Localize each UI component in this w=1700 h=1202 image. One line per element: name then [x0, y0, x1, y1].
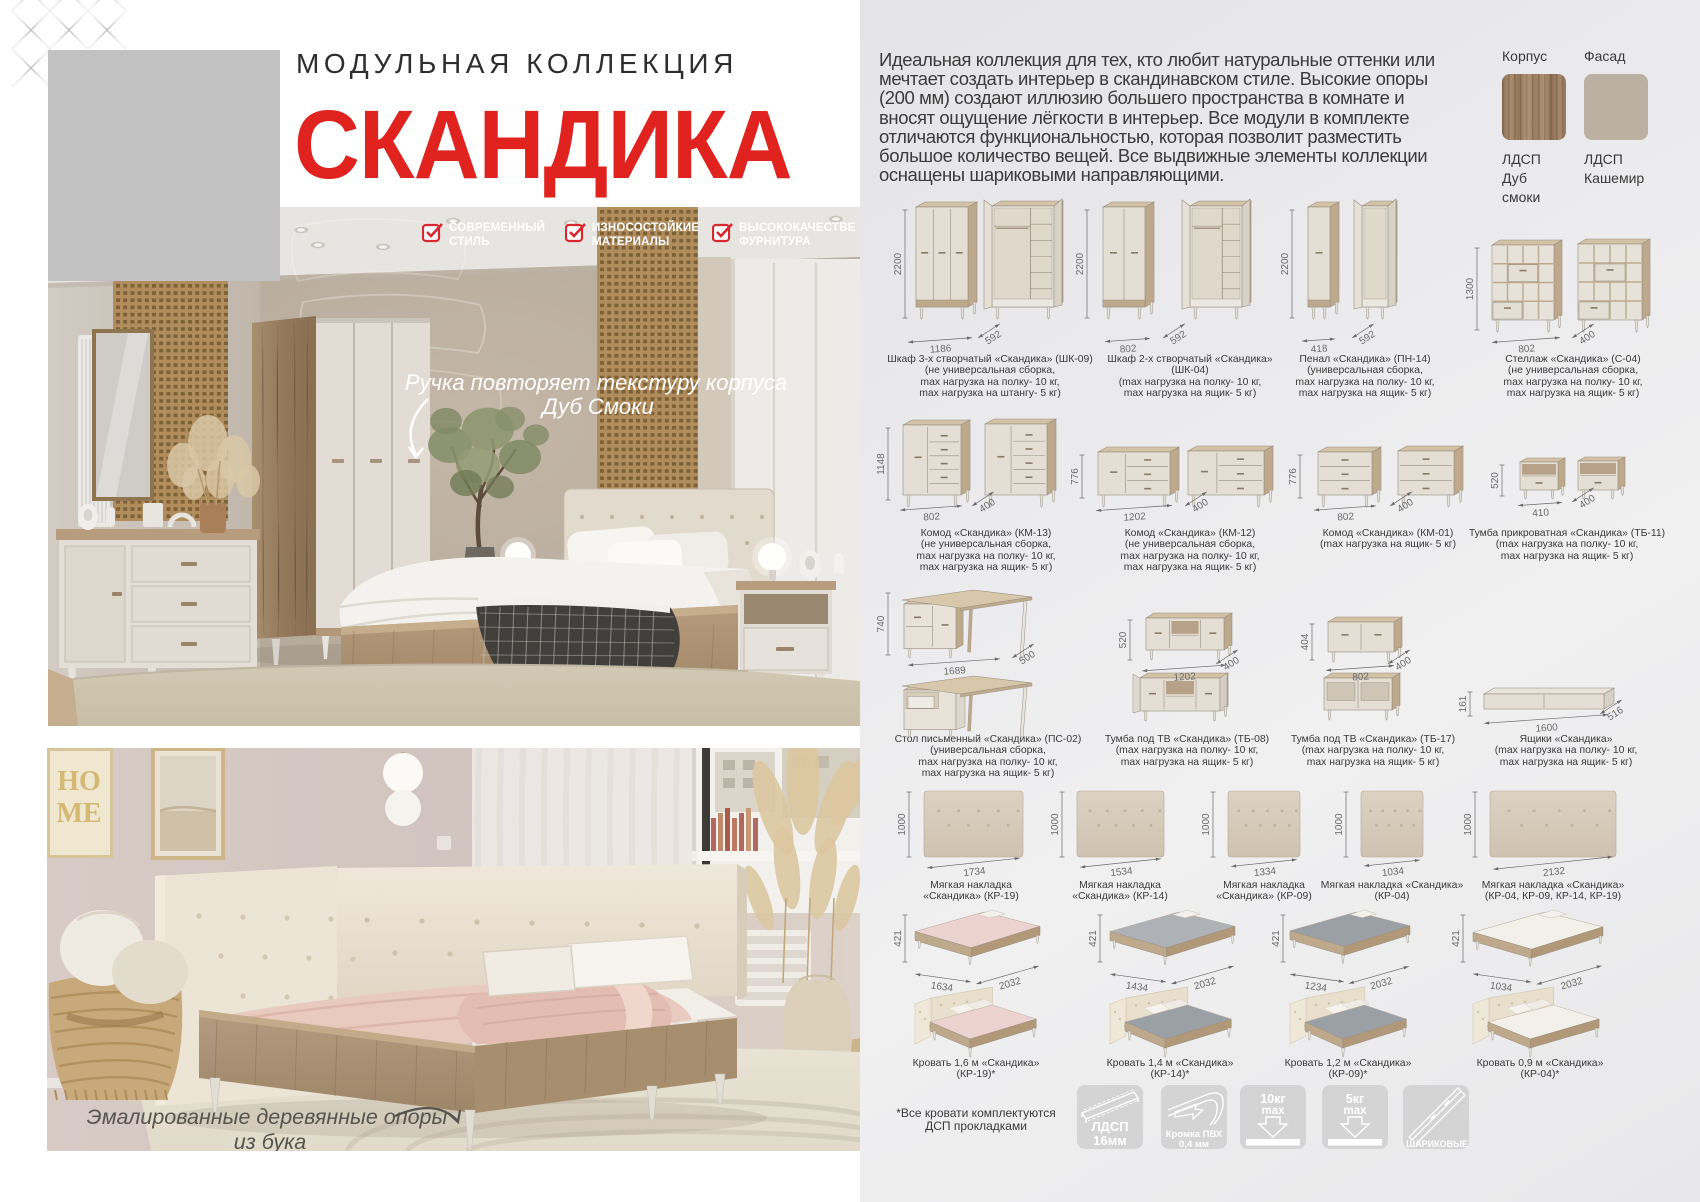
svg-text:2032: 2032 [1193, 976, 1218, 993]
svg-text:740: 740 [876, 615, 887, 632]
svg-text:1734: 1734 [963, 866, 987, 879]
svg-text:400: 400 [978, 497, 998, 516]
svg-text:1434: 1434 [1125, 980, 1149, 994]
svg-text:2200: 2200 [1280, 252, 1291, 275]
svg-text:592: 592 [1358, 329, 1378, 348]
svg-text:1300: 1300 [1465, 277, 1476, 300]
svg-text:400: 400 [1578, 493, 1598, 512]
svg-text:410: 410 [1532, 507, 1550, 519]
svg-text:2032: 2032 [1560, 976, 1585, 993]
svg-text:776: 776 [1070, 468, 1081, 485]
svg-text:1034: 1034 [1489, 980, 1513, 994]
svg-text:1534: 1534 [1110, 866, 1134, 879]
svg-text:1034: 1034 [1381, 866, 1405, 879]
svg-text:421: 421 [1451, 930, 1462, 947]
svg-text:1148: 1148 [876, 453, 887, 475]
svg-text:1600: 1600 [1535, 722, 1558, 735]
svg-text:802: 802 [1119, 343, 1137, 355]
svg-text:421: 421 [893, 930, 904, 947]
svg-text:1689: 1689 [943, 665, 966, 678]
svg-text:max: max [1343, 1105, 1367, 1117]
svg-text:802: 802 [1352, 671, 1370, 683]
svg-text:516: 516 [1606, 705, 1626, 724]
svg-text:16мм: 16мм [1093, 1133, 1127, 1148]
svg-text:1000: 1000 [1050, 813, 1061, 836]
svg-text:ЛДСП: ЛДСП [1091, 1119, 1128, 1134]
svg-text:802: 802 [923, 511, 941, 523]
svg-text:400: 400 [1222, 655, 1242, 674]
svg-text:2032: 2032 [1369, 976, 1394, 993]
svg-text:2132: 2132 [1542, 866, 1566, 879]
svg-text:421: 421 [1088, 930, 1099, 947]
svg-text:520: 520 [1118, 631, 1129, 648]
svg-text:ШАРИКОВЫЕ: ШАРИКОВЫЕ [1406, 1139, 1468, 1149]
svg-text:400: 400 [1396, 497, 1416, 516]
svg-text:1000: 1000 [1463, 813, 1474, 836]
svg-text:1234: 1234 [1304, 980, 1328, 994]
svg-text:2032: 2032 [998, 976, 1023, 993]
svg-text:418: 418 [1310, 343, 1328, 355]
svg-text:1000: 1000 [1201, 813, 1212, 836]
svg-text:1202: 1202 [1123, 511, 1146, 524]
svg-text:5кг: 5кг [1346, 1092, 1364, 1106]
svg-text:400: 400 [1578, 329, 1598, 348]
svg-text:1202: 1202 [1173, 671, 1196, 684]
svg-text:1334: 1334 [1253, 866, 1277, 879]
svg-text:802: 802 [1518, 343, 1536, 355]
svg-text:10кг: 10кг [1260, 1092, 1285, 1106]
svg-text:520: 520 [1490, 472, 1501, 489]
svg-text:0,4 мм: 0,4 мм [1179, 1139, 1209, 1150]
svg-text:1000: 1000 [897, 813, 908, 836]
svg-text:2200: 2200 [893, 252, 904, 275]
svg-text:1000: 1000 [1334, 813, 1345, 836]
svg-text:592: 592 [1169, 329, 1189, 348]
svg-text:802: 802 [1337, 511, 1355, 523]
svg-text:776: 776 [1288, 468, 1299, 485]
svg-text:400: 400 [1394, 655, 1414, 674]
svg-text:max: max [1261, 1105, 1285, 1117]
svg-text:1634: 1634 [930, 980, 954, 994]
svg-text:404: 404 [1300, 633, 1311, 650]
svg-text:1186: 1186 [930, 343, 953, 356]
svg-text:592: 592 [984, 329, 1004, 348]
svg-text:161: 161 [1458, 695, 1469, 712]
svg-text:2200: 2200 [1075, 252, 1086, 275]
svg-text:421: 421 [1271, 930, 1282, 947]
